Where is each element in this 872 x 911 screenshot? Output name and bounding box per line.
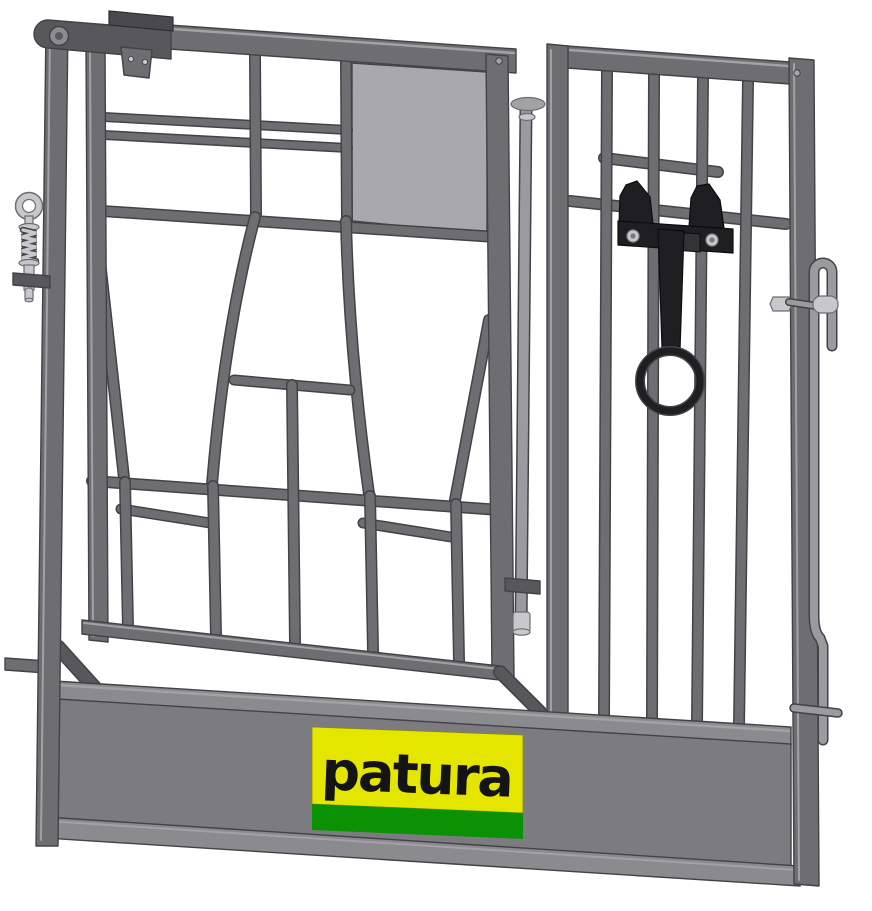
gate-sheet-panel: [352, 63, 487, 234]
render-canvas: patura: [0, 0, 872, 911]
panel-bar-1: [604, 71, 607, 717]
gate-lower-bar-5: [456, 504, 459, 661]
gate-upper-bar-right: [346, 61, 347, 220]
hinge-plate-hole-1: [128, 56, 133, 61]
gate-post-bolt: [496, 58, 502, 64]
spring-latch-ring-hole: [23, 200, 36, 213]
spring-coil: [22, 230, 36, 261]
spring-pin-tip-cap: [25, 298, 33, 302]
brand-logo-text: patura: [320, 739, 513, 810]
gate-lower-bar-2: [213, 486, 216, 636]
yoke-bar-right: [346, 221, 369, 494]
hinge-pin-tip: [513, 629, 530, 635]
spring-bracket: [13, 273, 50, 288]
hinge-pin-collar-top: [519, 114, 535, 121]
gate-diagonal-right: [455, 320, 489, 500]
left-yoke-gate: [82, 23, 516, 680]
hinge-pin-disc: [511, 98, 545, 111]
gate-lower-bar-4: [370, 496, 373, 651]
right-bar-panel: [547, 44, 790, 726]
bucket-holder-bolt-right-core: [709, 237, 714, 242]
right-post-bolt: [794, 70, 800, 76]
bucket-holder-strap: [658, 229, 684, 350]
hinge-pin-bracket: [505, 578, 540, 594]
gate-upper-bar-left: [255, 55, 256, 214]
latch-rod-collar: [813, 296, 838, 313]
bucket-holder-wing-right: [689, 184, 724, 228]
panel-bar-2: [652, 74, 654, 720]
bottom-trough: patura: [5, 647, 800, 886]
trough-brace-middle: [500, 672, 540, 712]
calf-gate-product-render: patura: [0, 0, 872, 911]
hinge-pivot-core: [55, 32, 63, 40]
bucket-holder-bolt-left-core: [630, 233, 635, 238]
hinge-pin-rod: [521, 108, 526, 628]
gate-left-post: [86, 44, 108, 642]
panel-bar-4: [739, 81, 748, 726]
hinge-plate-hole-2: [142, 59, 147, 64]
gate-lower-bar-center: [292, 385, 295, 642]
brand-logo: patura: [312, 727, 523, 839]
gate-lower-bar-1: [125, 482, 128, 628]
